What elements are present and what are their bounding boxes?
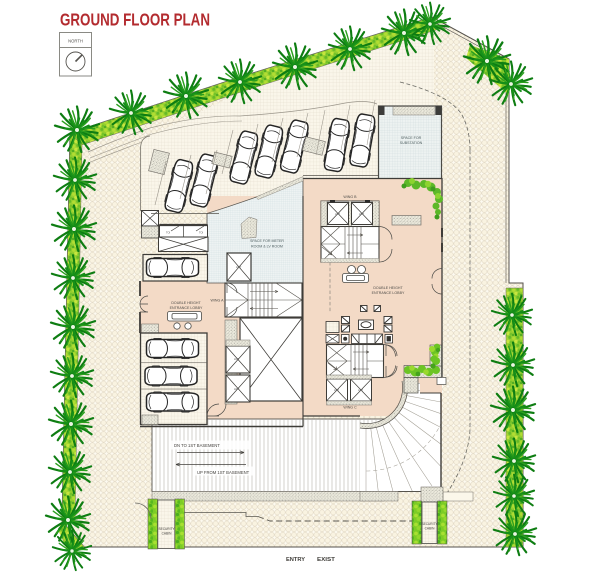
- svg-text:ENTRANCE LOBBY: ENTRANCE LOBBY: [372, 291, 405, 295]
- svg-text:EXIST: EXIST: [317, 557, 335, 563]
- svg-text:SECURITY: SECURITY: [158, 527, 175, 531]
- svg-text:LIFT: LIFT: [236, 265, 242, 269]
- svg-text:ENTRY: ENTRY: [286, 557, 305, 563]
- svg-text:UP FROM 1ST BASEMENT: UP FROM 1ST BASEMENT: [197, 470, 250, 475]
- svg-text:SUBSTATION: SUBSTATION: [400, 141, 423, 145]
- svg-text:LIFT: LIFT: [358, 389, 363, 392]
- svg-text:CABIN: CABIN: [162, 532, 172, 536]
- svg-text:LIFT: LIFT: [234, 387, 240, 391]
- svg-text:DOUBLE HEIGHT: DOUBLE HEIGHT: [171, 301, 201, 305]
- svg-text:LIFT: LIFT: [335, 213, 340, 216]
- svg-text:LIFT: LIFT: [334, 389, 339, 392]
- svg-text:LIFT: LIFT: [359, 213, 364, 216]
- svg-text:CABIN: CABIN: [425, 527, 435, 531]
- svg-text:NORTH: NORTH: [68, 39, 83, 44]
- svg-text:LIFT: LIFT: [234, 357, 240, 361]
- svg-text:TOI: TOI: [199, 231, 204, 235]
- svg-text:ROOM & LV ROOM: ROOM & LV ROOM: [251, 245, 283, 249]
- svg-text:GROUND FLOOR PLAN: GROUND FLOOR PLAN: [60, 10, 210, 30]
- svg-text:DN TO 1ST BASEMENT: DN TO 1ST BASEMENT: [174, 443, 220, 448]
- svg-text:ENTRANCE LOBBY: ENTRANCE LOBBY: [170, 306, 203, 310]
- svg-text:SPACE FOR: SPACE FOR: [401, 136, 422, 140]
- svg-text:SECURITY: SECURITY: [421, 522, 438, 526]
- svg-text:SPACE FOR METER: SPACE FOR METER: [250, 239, 284, 243]
- svg-text:TOI: TOI: [166, 231, 171, 235]
- svg-text:DOUBLE HEIGHT: DOUBLE HEIGHT: [373, 286, 403, 290]
- svg-text:WING B: WING B: [343, 195, 357, 199]
- svg-text:WING C: WING C: [343, 406, 357, 410]
- svg-text:WING A: WING A: [211, 299, 225, 303]
